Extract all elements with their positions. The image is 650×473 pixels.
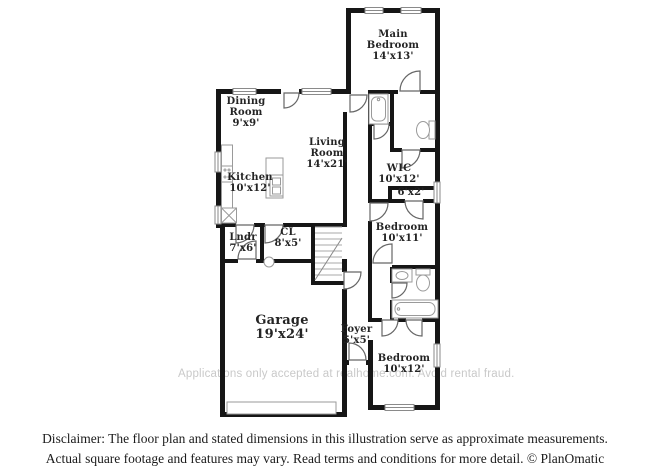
room-name: Bedroom (366, 353, 442, 364)
room-dims: 10'x12' (366, 364, 442, 375)
bath-tub-room-door (374, 124, 389, 139)
room-label-dining: Dining Room 9'x9' (214, 96, 278, 130)
room-dims: 8'x5' (267, 238, 309, 249)
room-dims: 14'x21' (295, 159, 359, 170)
room-label-living: Living Room 14'x21' (295, 137, 359, 171)
closet-door (405, 201, 423, 219)
room-label-laundry: Lndr 7'x6' (219, 232, 267, 254)
room-name: Main Bedroom (355, 29, 431, 51)
room-dims: 10'x12' (369, 174, 429, 185)
disclaimer-line-2: Actual square footage and features may v… (0, 449, 650, 469)
room-dims: 9'x9' (214, 118, 278, 129)
bedroom-mid-hall-door (373, 244, 392, 263)
room-dims: 10'x12' (212, 183, 288, 194)
room-dims: 5'x5' (334, 335, 379, 346)
floor-plan-drawing (0, 0, 650, 473)
garage-hall-door (344, 272, 361, 289)
room-name: Lndr (219, 232, 267, 243)
room-label-foyer: Foyer 5'x5' (334, 324, 379, 346)
room-name: Kitchen (212, 172, 288, 183)
hall-door (350, 95, 367, 112)
room-name: Living Room (295, 137, 359, 159)
bedroom-bottom-door-right (406, 320, 422, 336)
bath2-toilet-tank (416, 269, 430, 275)
ceiling-fixture (264, 257, 274, 267)
room-dims: 10'x11' (364, 233, 440, 244)
room-label-garage: Garage 19'x24' (237, 314, 327, 343)
room-label-bedroom-bottom: Bedroom 10'x12' (366, 353, 442, 375)
room-dims: 19'x24' (237, 328, 327, 342)
bath2-door (392, 283, 407, 298)
bath2-toilet (417, 275, 430, 291)
room-label-bedroom-mid: Bedroom 10'x11' (364, 222, 440, 244)
room-name: Bedroom (364, 222, 440, 233)
room-dims: 7'x6' (219, 243, 267, 254)
room-label-main-bedroom: Main Bedroom 14'x13' (355, 29, 431, 63)
room-name: Garage (237, 314, 327, 328)
room-label-cl: CL 8'x5' (267, 227, 309, 249)
room-name: WIC (369, 163, 429, 174)
disclaimer-text: Disclaimer: The floor plan and stated di… (0, 429, 650, 470)
main-toilet (417, 122, 430, 139)
room-name: Dining Room (214, 96, 278, 118)
bedroom-bottom-door-left (382, 320, 398, 336)
room-label-wic: WIC 10'x12' (369, 163, 429, 185)
room-label-kitchen: Kitchen 10'x12' (212, 172, 288, 194)
floor-plan-page: Applications only accepted at realhome.c… (0, 0, 650, 473)
bedroom-mid-door (370, 203, 388, 221)
stairs (315, 227, 342, 280)
garage-door (227, 402, 336, 414)
room-dims: 14'x13' (355, 51, 431, 62)
room-name: Foyer (334, 324, 379, 335)
back-door (284, 93, 299, 108)
main-bedroom-door (400, 71, 420, 91)
room-label-closet: 6'x2' (388, 187, 434, 198)
room-name: CL (267, 227, 309, 238)
disclaimer-line-1: Disclaimer: The floor plan and stated di… (0, 429, 650, 449)
room-dims: 6'x2' (388, 187, 434, 198)
